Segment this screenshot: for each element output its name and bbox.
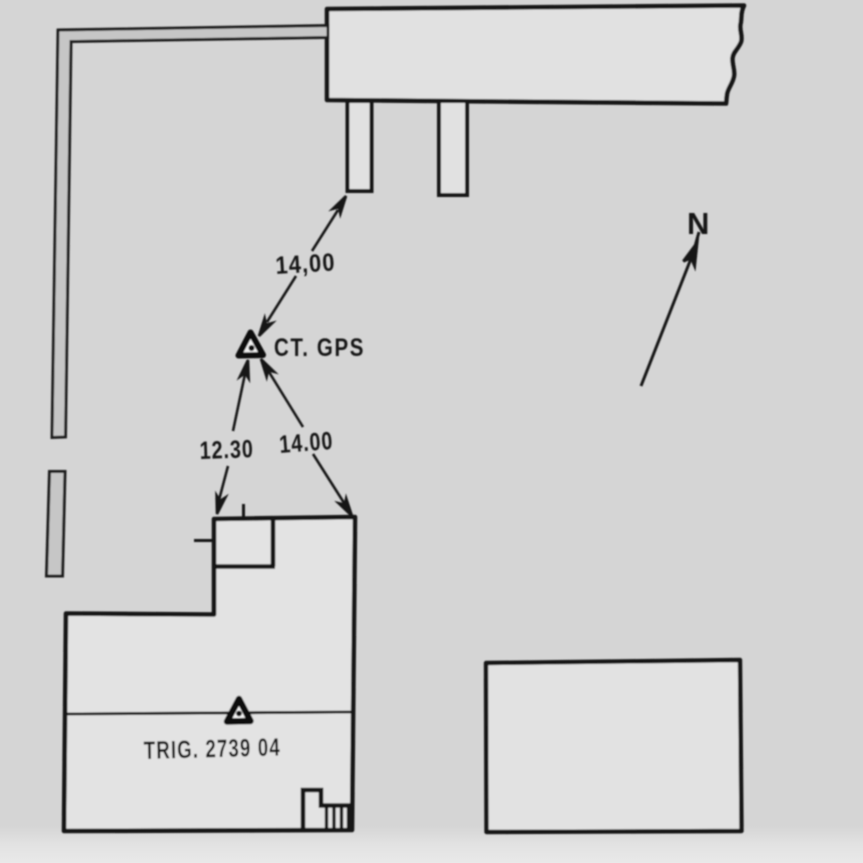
svg-text:TRIG. 2739 04: TRIG. 2739 04 xyxy=(143,733,281,765)
svg-text:CT. GPS: CT. GPS xyxy=(274,334,365,362)
svg-text:12.30: 12.30 xyxy=(199,435,254,465)
svg-text:14.00: 14.00 xyxy=(278,427,334,459)
svg-text:14,00: 14,00 xyxy=(275,248,337,280)
svg-text:N: N xyxy=(687,206,709,241)
